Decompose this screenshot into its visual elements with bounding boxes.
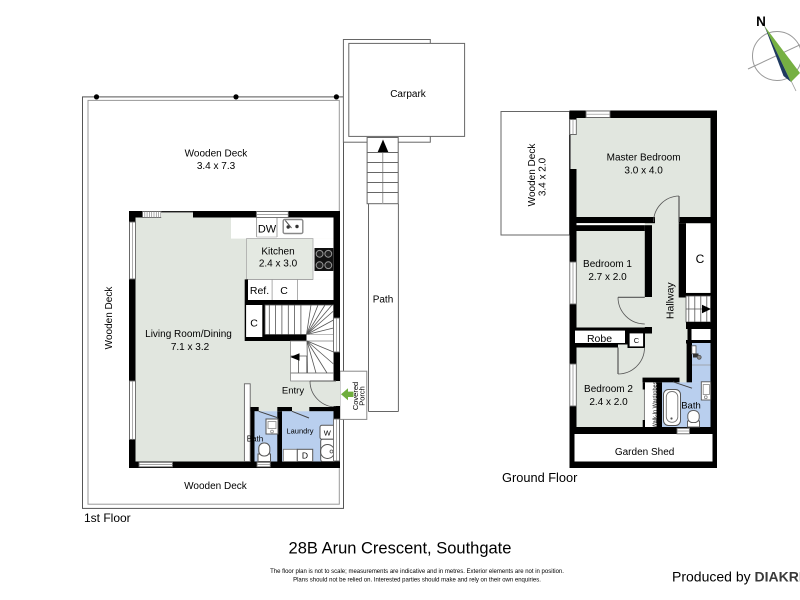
svg-text:C: C	[250, 318, 258, 330]
svg-text:3.4 x 7.3: 3.4 x 7.3	[197, 161, 236, 172]
svg-text:Garden Shed: Garden Shed	[615, 447, 675, 458]
svg-text:2.7 x 2.0: 2.7 x 2.0	[588, 272, 627, 283]
svg-text:C: C	[696, 252, 705, 266]
svg-text:Bedroom 1: Bedroom 1	[583, 259, 632, 270]
svg-text:C: C	[634, 336, 640, 345]
svg-text:Kitchen: Kitchen	[261, 247, 294, 258]
svg-text:Carpark: Carpark	[390, 89, 427, 100]
svg-text:D: D	[302, 451, 308, 461]
svg-text:Bath: Bath	[681, 401, 701, 412]
svg-text:Wooden Deck: Wooden Deck	[184, 481, 248, 492]
svg-text:C: C	[280, 285, 288, 297]
svg-text:28B Arun Crescent, Southgate: 28B Arun Crescent, Southgate	[289, 540, 512, 558]
svg-text:1st Floor: 1st Floor	[84, 511, 131, 525]
svg-text:3.0 x 4.0: 3.0 x 4.0	[624, 166, 663, 177]
svg-text:Porch: Porch	[358, 386, 367, 406]
svg-text:Living Room/Dining: Living Room/Dining	[145, 329, 232, 340]
svg-text:The floor plan is not to scale: The floor plan is not to scale; measurem…	[270, 569, 564, 575]
svg-text:N: N	[756, 14, 766, 29]
svg-text:2.4 x 3.0: 2.4 x 3.0	[259, 259, 298, 270]
svg-text:Produced by DIAKRIT: Produced by DIAKRIT	[672, 569, 800, 585]
svg-text:3.4 x 2.0: 3.4 x 2.0	[538, 157, 549, 196]
svg-text:Path: Path	[373, 295, 394, 306]
svg-text:W: W	[324, 429, 332, 438]
svg-text:Wooden Deck: Wooden Deck	[104, 286, 115, 350]
svg-text:Bath: Bath	[247, 435, 263, 444]
svg-text:Hallway: Hallway	[664, 282, 676, 320]
svg-text:DW: DW	[258, 224, 277, 236]
svg-text:Entry: Entry	[282, 386, 304, 397]
svg-text:7.1 x 3.2: 7.1 x 3.2	[171, 342, 210, 353]
svg-text:Laundry: Laundry	[286, 427, 313, 436]
svg-text:Plans should not be relied on.: Plans should not be relied on. Intereste…	[293, 578, 541, 584]
svg-text:Ref.: Ref.	[250, 285, 269, 297]
svg-text:2.4 x 2.0: 2.4 x 2.0	[589, 397, 628, 408]
svg-text:Robe: Robe	[587, 333, 612, 345]
svg-text:Master Bedroom: Master Bedroom	[607, 153, 681, 164]
svg-text:Bedroom 2: Bedroom 2	[584, 384, 633, 395]
svg-text:Ground Floor: Ground Floor	[502, 470, 578, 485]
svg-text:Wooden Deck: Wooden Deck	[185, 149, 249, 160]
